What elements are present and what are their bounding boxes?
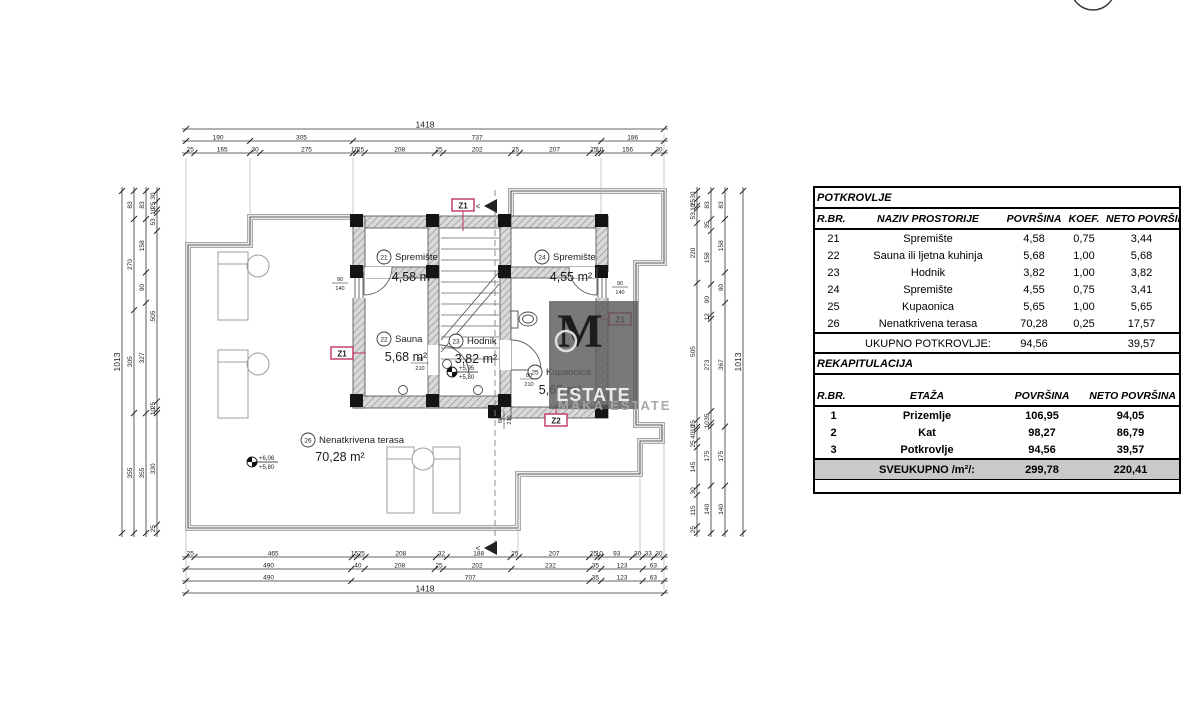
col-header: NETO POVRŠINA [1104,208,1180,229]
table-cell: 5,68 [1004,247,1064,264]
svg-text:Z2: Z2 [551,417,561,426]
table-cell: 106,95 [1002,406,1082,424]
room-area: 4,58 m² [392,270,434,284]
dimension-label: 270 [127,259,134,270]
dimension-label: 25 [690,440,697,448]
dimension-label: 53 [150,218,157,226]
dimension-label: 367 [718,359,725,370]
dimension-label: 145 [690,461,697,472]
dimension-label: 490 [263,575,274,582]
col-header: KOEF. [1064,208,1104,229]
level-value-bottom: +5,80 [459,375,475,381]
rekapitulacija-table-wrap: REKAPITULACIJA R.BR. ETAŽA POVRŠINA NETO… [813,352,1181,494]
table-cell: 1,00 [1064,264,1104,281]
table-cell: Potkrovlje [852,441,1002,459]
table-cell: 0,75 [1064,281,1104,298]
dimension-label: 207 [549,147,560,154]
potkrovlje-table-wrap: POTKROVLJE R.BR. NAZIV PROSTORIJE POVRŠI… [813,186,1181,355]
dimension-label: 140 [718,504,725,515]
dimension-label: 25 [150,525,157,533]
room-name: Spremište [395,252,438,263]
dimension-label: 158 [139,240,146,251]
dimension-label: 35 [704,221,711,229]
table-cell: 98,27 [1002,424,1082,441]
table-cell: Spremište [852,281,1004,298]
dimension-label: 90 [718,284,725,292]
dimension-label: 737 [472,135,483,142]
dimension-label: 1418 [416,584,435,594]
dimension-label: 490 [263,563,274,570]
room-area: 4,55 m² [550,270,592,284]
table-row: 21Spremište4,580,753,44 [814,229,1180,247]
total-povrsina: 299,78 [1002,459,1082,480]
dimension-label: 63 [650,563,658,570]
dimension-label: 32 [438,551,446,558]
dimension-label: 158 [718,240,725,251]
svg-text:80: 80 [417,357,423,363]
dimension-label: 25 [435,563,443,570]
table-cell: 23 [814,264,852,281]
room-number: 26 [304,438,312,445]
table-cell: 21 [814,229,852,247]
table-title: REKAPITULACIJA [814,353,1180,374]
dimension-label: 505 [150,310,157,321]
dimension-label: 275 [301,147,312,154]
svg-text:Z1: Z1 [458,202,468,211]
table-cell: 1,00 [1064,247,1104,264]
svg-text:210: 210 [524,382,533,388]
dimension-label: 208 [394,147,405,154]
dimension-label: 202 [472,563,483,570]
dimension-label: 83 [718,201,725,209]
col-header: NETO POVRŠINA [1082,386,1180,406]
total-neto: 220,41 [1082,459,1180,480]
dimension-label: 25 [435,147,443,154]
dimension-label: 140 [704,504,711,515]
dimension-label: 305 [296,135,307,142]
dimension-label: 123 [617,563,628,570]
svg-text:140: 140 [335,286,344,292]
dimension-label: 188 [473,551,484,558]
svg-text:210: 210 [415,366,424,372]
table-cell: 5,65 [1104,298,1180,315]
table-cell: 94,05 [1082,406,1180,424]
table-cell: 17,57 [1104,315,1180,333]
dimension-label: 83 [704,201,711,209]
dimension-label: 465 [268,551,279,558]
svg-text:Z1: Z1 [337,350,347,359]
dimension-label: 175 [718,450,725,461]
svg-text:90: 90 [617,281,623,287]
dimension-label: 25 [187,147,195,154]
dimension-label: 83 [139,201,146,209]
dimension-label: 25 [690,526,697,534]
spacer [814,374,1180,386]
table-row: 25Kupaonica5,651,005,65 [814,298,1180,315]
col-header: POVRŠINA [1002,386,1082,406]
dimension-label: 30 [690,191,697,199]
opening-label-right-window: 90 140 [612,281,628,296]
dimension-label: 35 [592,575,600,582]
table-title: POTKROVLJE [814,187,1180,208]
dimension-label: 30 [150,192,157,200]
dimension-label: 25 [512,147,520,154]
dimension-label: 505 [690,346,697,357]
watermark-maka-text: MAKA ESTATE [558,398,671,413]
dimension-label: 273 [704,359,711,370]
table-cell: 70,28 [1004,315,1064,333]
table-cell: 86,79 [1082,424,1180,441]
svg-text:80: 80 [526,373,532,379]
table-row: 26Nenatkrivena terasa70,280,2517,57 [814,315,1180,333]
dimension-label: 90 [704,296,711,304]
dimension-label: 327 [139,352,146,363]
dimension-label: 83 [127,201,134,209]
section-arrow-glyph-top: < [476,202,481,211]
table-cell: 4,58 [1004,229,1064,247]
level-value-bottom: +5,80 [259,465,275,471]
table-cell: 3,41 [1104,281,1180,298]
dimension-label: 115 [690,505,697,516]
dimension-label: 40 [354,563,362,570]
dimension-label: 63 [650,575,658,582]
dimension-label: 1013 [733,352,743,371]
room-name: Hodnik [467,336,497,347]
level-marker-hodnik: +5,95 +5,80 [447,366,478,381]
dimension-label: 93 [613,551,621,558]
table-cell: 24 [814,281,852,298]
table-cell: 3,82 [1104,264,1180,281]
room-number: 22 [380,337,388,344]
section-line: < < [476,190,497,555]
table-cell: 26 [814,315,852,333]
svg-text:90: 90 [337,277,343,283]
col-header: R.BR. [814,386,852,406]
table-cell: 94,56 [1002,441,1082,459]
opening-label-left-window: 90 140 [332,277,348,292]
dimension-label: 30 [251,147,259,154]
toilet-fixture [511,311,537,328]
table-cell: Kupaonica [852,298,1004,315]
table-row: 22Sauna ili ljetna kuhinja5,681,005,68 [814,247,1180,264]
total-label: UKUPNO POTKROVLJE: [852,333,1004,354]
room-number: 24 [538,255,546,262]
room-area: 70,28 m² [315,450,364,464]
table-cell: 25 [814,298,852,315]
dimension-label: 35 [592,563,600,570]
room-number: 23 [452,339,460,346]
table-cell: 1 [814,406,852,424]
table-cell: 2 [814,424,852,441]
level-marker-terrace: +6,06 +5,80 [247,456,278,471]
dimension-label: 33 [645,551,653,558]
table-cell: Hodnik [852,264,1004,281]
dimension-label: 175 [704,450,711,461]
floor-plan-page: < < 21 Spremište 4,58 m² 24 Spremište 4,… [0,0,1200,721]
dimension-label: 25 [358,551,366,558]
section-arrow-bottom [484,541,497,555]
svg-text:210: 210 [507,415,513,424]
dimension-label: 53 [690,212,697,220]
table-cell: 0,25 [1064,315,1104,333]
watermark-box: M ESTATE [549,301,638,409]
room-name: Sauna [395,334,423,345]
total-label: SVEUKUPNO /m²/: [852,459,1002,480]
table-row: 23Hodnik3,821,003,82 [814,264,1180,281]
dimension-label: 25 [357,147,365,154]
dimension-label: 1418 [416,120,435,130]
table-cell: Spremište [852,229,1004,247]
table-row: 24Spremište4,550,753,41 [814,281,1180,298]
dimension-label: 305 [127,356,134,367]
table-cell: 22 [814,247,852,264]
table-cell: 5,65 [1004,298,1064,315]
rekapitulacija-table: REKAPITULACIJA R.BR. ETAŽA POVRŠINA NETO… [813,352,1181,494]
dimension-label: 1013 [112,352,122,371]
dimension-label: 30 [655,551,663,558]
dimension-label: 158 [704,252,711,263]
room-area: 3,82 m² [455,352,497,366]
table-cell: 4,55 [1004,281,1064,298]
table-cell: 39,57 [1082,441,1180,459]
room-name: Nenatkrivena terasa [319,435,405,446]
maka-estate-logo-icon: M [549,301,611,359]
spacer [814,480,1180,494]
room-number: 21 [380,255,388,262]
table-cell [814,333,852,354]
dimension-label: 707 [465,575,476,582]
dimension-label: 165 [217,147,228,154]
svg-text:80: 80 [498,417,504,423]
page-corner-circle [1071,0,1115,10]
table-cell: Sauna ili ljetna kuhinja [852,247,1004,264]
col-header: POVRŠINA [1004,208,1064,229]
table-cell [814,459,852,480]
dimension-label: 208 [395,551,406,558]
dimension-label: 186 [627,135,638,142]
table-cell: 3,82 [1004,264,1064,281]
total-povrsina: 94,56 [1004,333,1064,354]
watermark: M ESTATE MAKA ESTATE [549,301,669,409]
total-neto: 39,57 [1104,333,1180,354]
dimension-label: 90 [139,284,146,292]
room-name: Spremište [553,252,596,263]
table-cell: 5,68 [1104,247,1180,264]
dimension-label: 156 [622,147,633,154]
dimension-label: 25 [511,551,519,558]
table-cell: Kat [852,424,1002,441]
col-header: ETAŽA [852,386,1002,406]
table-row: 3Potkrovlje94,5639,57 [814,441,1180,459]
dimension-label: 330 [150,463,157,474]
dimension-label: 355 [139,467,146,478]
dimension-label: 355 [127,467,134,478]
dimension-label: 208 [394,563,405,570]
dimension-label: 232 [545,563,556,570]
table-cell: 3 [814,441,852,459]
table-row: 2Kat98,2786,79 [814,424,1180,441]
dimension-label: 25 [187,551,195,558]
dimension-label: 30 [690,487,697,495]
dimension-label: 40 [690,431,697,439]
table-cell: 0,75 [1064,229,1104,247]
section-arrow-top [484,199,497,213]
dimension-label: 30 [655,147,663,154]
dimension-label: 35 [704,413,711,421]
room-number: 25 [531,370,539,377]
level-value-top: +5,95 [459,366,475,372]
table-cell: Nenatkrivena terasa [852,315,1004,333]
dimension-label: 123 [617,575,628,582]
table-cell [1064,333,1104,354]
dimension-label: 190 [213,135,224,142]
col-header: NAZIV PROSTORIJE [852,208,1004,229]
dimension-label: 207 [549,551,560,558]
level-value-top: +6,06 [259,456,275,462]
potkrovlje-table: POTKROVLJE R.BR. NAZIV PROSTORIJE POVRŠI… [813,186,1181,355]
svg-text:140: 140 [615,290,624,296]
dimension-label: 30 [634,551,642,558]
table-cell: Prizemlje [852,406,1002,424]
table-cell: 3,44 [1104,229,1180,247]
table-row: 1Prizemlje106,9594,05 [814,406,1180,424]
dimension-label: 202 [472,147,483,154]
table-cell: 1,00 [1064,298,1104,315]
dimension-label: 220 [690,247,697,258]
col-header: R.BR. [814,208,852,229]
